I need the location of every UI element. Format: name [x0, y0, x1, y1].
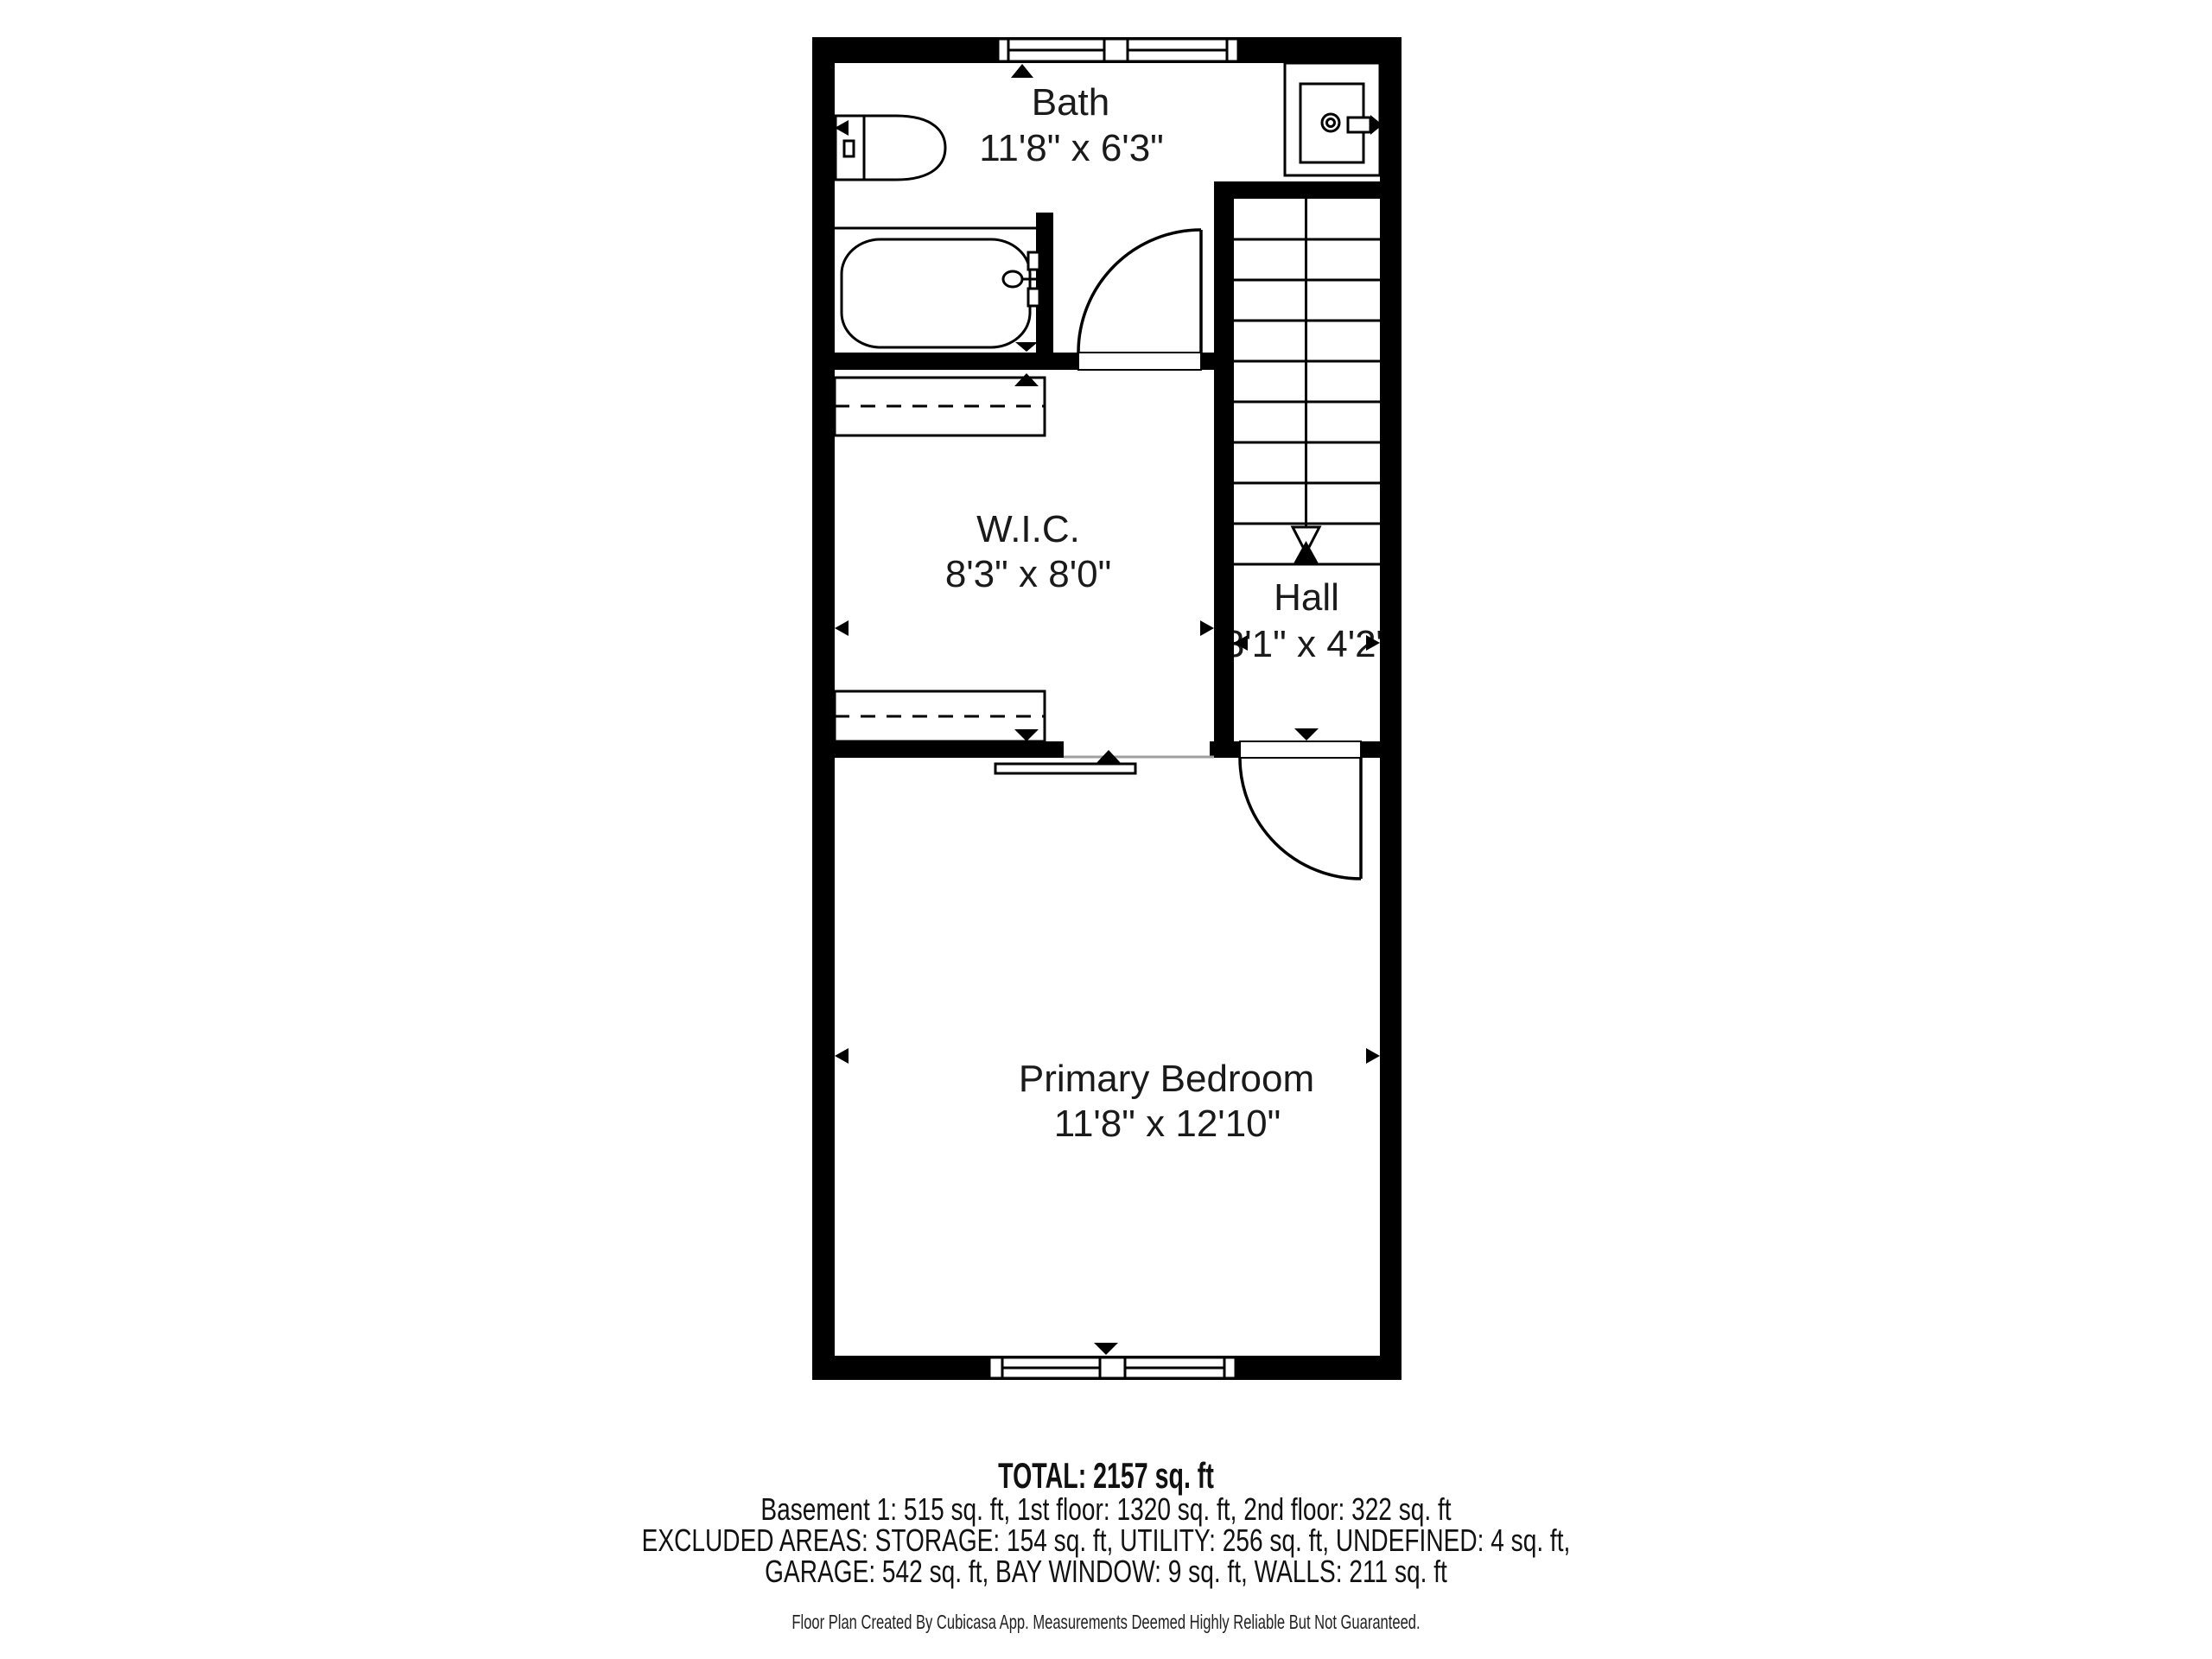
wall-bedroom-top-mid [1210, 741, 1240, 758]
arrow-left-icon [835, 1048, 849, 1064]
excluded-areas-text-line2: GARAGE: 542 sq. ft, BAY WINDOW: 9 sq. ft… [244, 1554, 1969, 1590]
floor-plan-page: Hall 3'1" x 4'2" [0, 0, 2212, 1659]
arrow-right-icon [1366, 1048, 1380, 1064]
bedroom-door-threshold [1240, 741, 1361, 758]
room-dimension-hall: 3'1" x 4'2" [1224, 623, 1389, 665]
floor-plan-drawing: Hall 3'1" x 4'2" [0, 0, 2212, 1659]
arrow-up-icon [1011, 64, 1033, 78]
room-label-wic: W.I.C. [976, 508, 1080, 550]
arrow-down-icon [1015, 342, 1038, 352]
total-area-text: TOTAL: 2157 sq. ft [354, 1455, 1859, 1497]
wall-bath-wic-left [812, 353, 1078, 370]
bathtub-icon [842, 239, 1039, 347]
bath-door-icon [1078, 230, 1201, 353]
bedroom-door-icon [1240, 758, 1361, 879]
room-dimension-wic: 8'3" x 8'0" [945, 553, 1111, 595]
bath-door-threshold [1078, 353, 1201, 370]
arrow-left-icon [835, 620, 849, 636]
wall-bath-stairs [1214, 181, 1380, 199]
toilet-icon [836, 116, 945, 180]
room-dimension-bath: 11'8" x 6'3" [979, 127, 1164, 169]
arrow-down-icon [1094, 1343, 1118, 1355]
hall-room-label: Hall 3'1" x 4'2" [1224, 576, 1389, 665]
stairs [1234, 199, 1380, 565]
stairs-direction-filled-triangle [1293, 541, 1319, 565]
outer-wall-left [812, 37, 835, 1380]
wall-bedroom-top-left [812, 741, 1064, 758]
wic-shelf-bottom [835, 691, 1045, 741]
room-label-hall: Hall [1274, 576, 1339, 619]
wic-shelf-top [835, 378, 1045, 435]
sliding-door-icon [995, 764, 1135, 773]
wall-bedroom-top-right [1361, 741, 1402, 758]
room-label-bath: Bath [1032, 81, 1110, 124]
disclaimer-text: Floor Plan Created By Cubicasa App. Meas… [309, 1611, 1902, 1634]
wall-bath-wic-right [1201, 353, 1234, 370]
wall-stairs-left [1214, 181, 1234, 741]
window-bottom [989, 1357, 1236, 1378]
room-label-primary-bedroom: Primary Bedroom [1019, 1058, 1314, 1100]
arrow-right-icon [1200, 620, 1214, 636]
window-top [998, 39, 1238, 61]
sink-icon [1285, 63, 1380, 175]
arrow-down-icon [1294, 728, 1319, 741]
outer-wall-right [1380, 37, 1402, 1380]
room-dimension-primary-bedroom: 11'8" x 12'10" [1054, 1103, 1281, 1145]
